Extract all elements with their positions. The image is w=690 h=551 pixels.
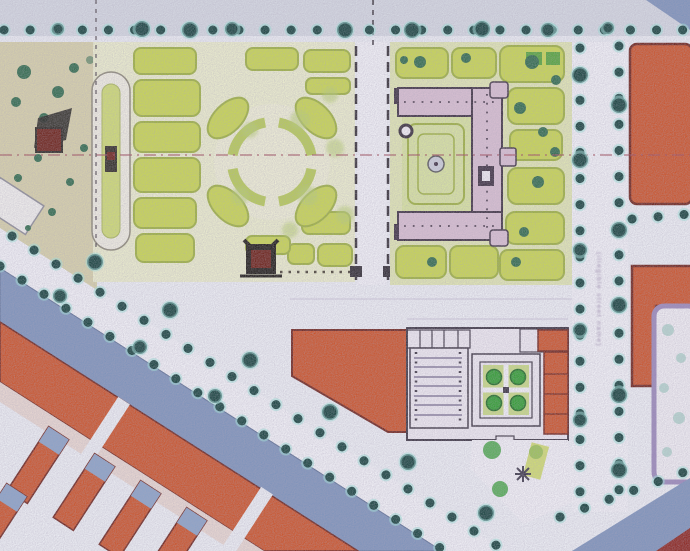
- site-plan-map: (illegible street name): [0, 0, 690, 551]
- scan-grain-overlay: [0, 0, 690, 551]
- map-canvas: (illegible street name): [0, 0, 690, 551]
